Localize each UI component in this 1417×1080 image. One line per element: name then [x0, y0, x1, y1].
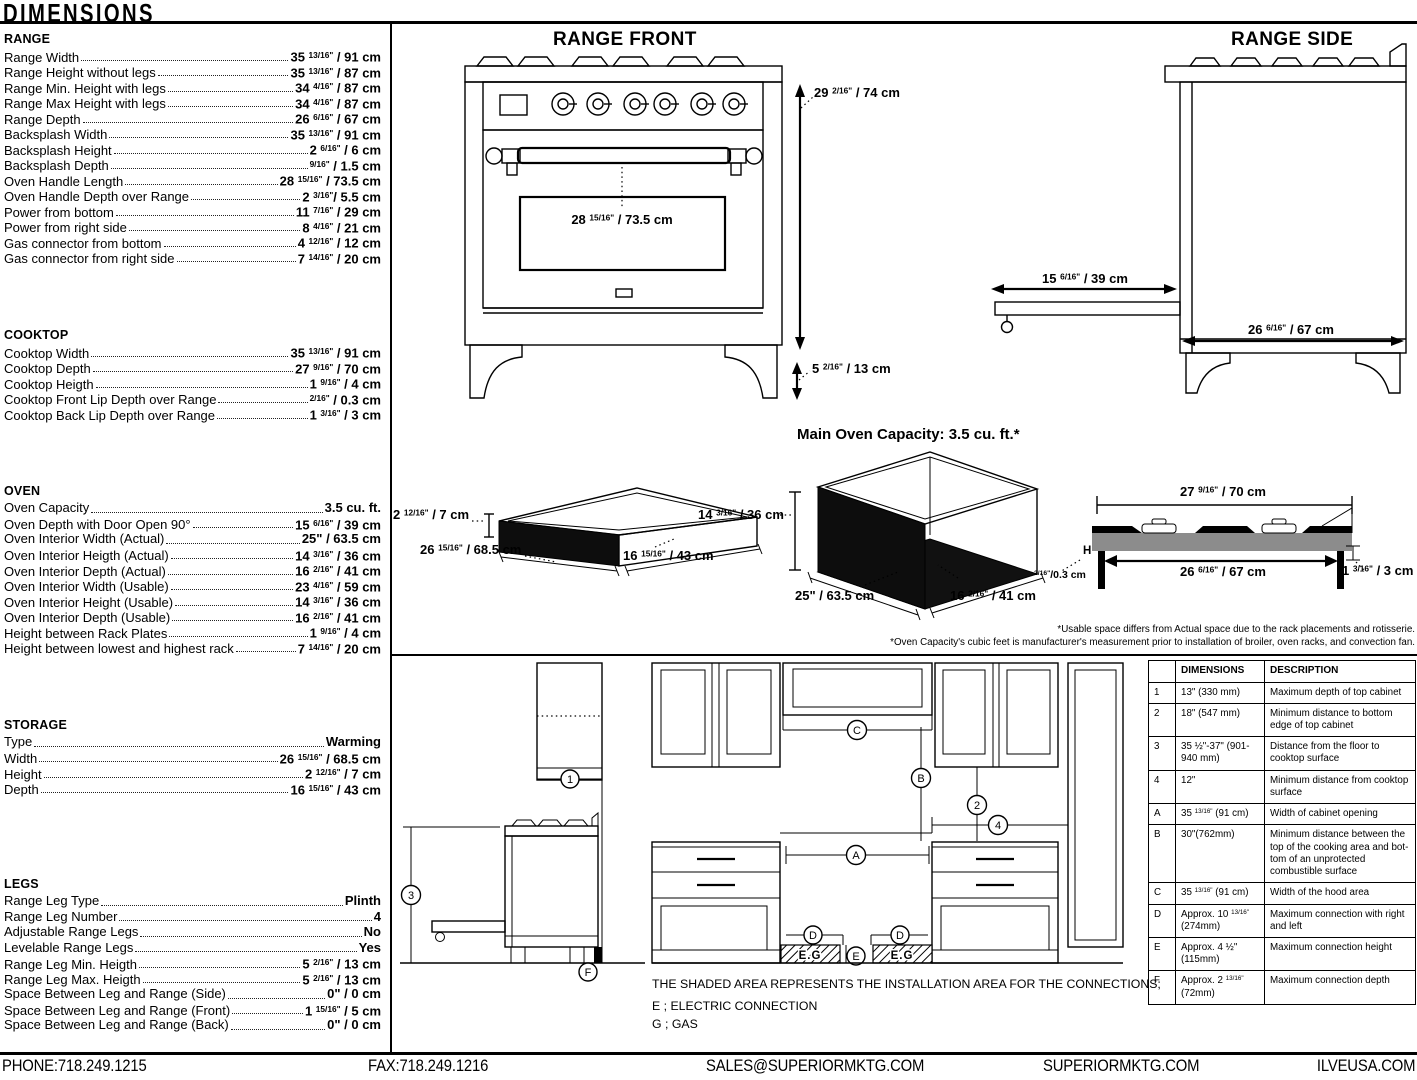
dim-drawer-height: 2 12/16" / 7 cm: [393, 507, 469, 522]
range-body-side: [1180, 82, 1406, 353]
range-front-drawing: [465, 57, 813, 400]
spec-sheet: DIMENSIONS RANGE Range Width35 13/16" / …: [0, 0, 1417, 1080]
spec-row: Range Leg TypePlinth: [4, 893, 381, 909]
spec-label: Cooktop Back Lip Depth over Range: [4, 408, 215, 424]
dim-cooktop-top: 27 9/16" / 70 cm: [1163, 484, 1283, 499]
spec-label: Height: [4, 767, 42, 783]
spec-row: Space Between Leg and Range (Side)0" / 0…: [4, 986, 381, 1002]
base-cabinet-left: [652, 842, 780, 963]
spec-row: Width26 15/16" / 68.5 cm: [4, 750, 381, 766]
row-dim: Approx. 4 ½" (115mm): [1176, 938, 1265, 971]
spec-row: Range Width35 13/16" / 91 cm: [4, 48, 381, 64]
right-leg: [725, 345, 777, 398]
dotted-leader: [96, 387, 308, 388]
spec-row: Oven Interior Width (Usable)23 4/16" / 5…: [4, 578, 381, 594]
spec-row: Oven Handle Length28 15/16" / 73.5 cm: [4, 172, 381, 188]
svg-text:E.G: E.G: [799, 950, 822, 962]
dotted-leader: [172, 620, 293, 621]
dotted-leader: [41, 792, 289, 793]
connection-bar: [594, 947, 602, 963]
height-dim-arrow: [795, 84, 813, 350]
table-row: 113" (330 mm)Maximum depth of top cabine…: [1149, 682, 1416, 703]
cooktop-small: [505, 826, 598, 836]
dim-rs-depth: 26 6/16" / 67 cm: [1248, 322, 1334, 337]
row-key: D: [1149, 904, 1176, 937]
spec-label: Backsplash Width: [4, 127, 107, 143]
footer-website-ilve: ILVEUSA.COM: [1317, 1057, 1415, 1076]
range-body-small: [505, 836, 598, 947]
row-desc: Maximum depth of top cabinet: [1265, 682, 1416, 703]
burner-cap-left-top: [1152, 519, 1166, 524]
dotted-leader: [129, 230, 301, 231]
row-key: A: [1149, 804, 1176, 825]
dotted-leader: [91, 356, 288, 357]
footnotes: *Usable space differs from Actual space …: [775, 624, 1415, 649]
row-dim: 12": [1176, 770, 1265, 803]
spec-row: Cooktop Front Lip Depth over Range2/16" …: [4, 391, 381, 407]
spec-label: Oven Interior Height (Usable): [4, 595, 173, 611]
spec-row: Oven Handle Depth over Range2 3/16"/ 5.5…: [4, 188, 381, 204]
dotted-leader: [164, 246, 296, 247]
cooktop-band: [465, 66, 782, 82]
row-dim: 35 13/16" (91 cm): [1176, 804, 1265, 825]
title-rule: [0, 21, 1417, 24]
spec-row: Range Min. Height with legs34 4/16" / 87…: [4, 79, 381, 95]
row-desc: Minimum distance to bottom edge of top c…: [1265, 703, 1416, 736]
spec-label: Gas connector from right side: [4, 251, 175, 267]
backsplash: [1390, 44, 1406, 66]
spec-label: Height between lowest and highest rack: [4, 641, 234, 657]
dim-drawer-depth: 16 15/16" / 43 cm: [623, 548, 714, 563]
spec-value: No: [364, 924, 381, 940]
dotted-leader: [158, 75, 289, 76]
spec-row: Oven Interior Height (Usable)14 3/16" / …: [4, 593, 381, 609]
spec-label: Oven Handle Depth over Range: [4, 189, 189, 205]
section-range: RANGE Range Width35 13/16" / 91 cm Range…: [4, 31, 381, 265]
dotted-leader: [175, 605, 293, 606]
oven-height-bracket: [780, 492, 801, 570]
open-door-small: [432, 921, 505, 932]
row-dim: 30"(762mm): [1176, 825, 1265, 883]
dotted-leader: [119, 920, 371, 921]
dotted-leader: [101, 905, 343, 906]
table-row: DApprox. 10 13/16" (274mm)Maximum connec…: [1149, 904, 1416, 937]
dim-cooktop-front-lip: 2/16"/0.3 cm: [1034, 569, 1086, 581]
svg-text:A: A: [852, 850, 860, 862]
dotted-leader: [218, 402, 307, 403]
dotted-leader: [83, 122, 293, 123]
col-dimensions: DIMENSIONS: [1176, 661, 1265, 683]
dotted-leader: [231, 1029, 325, 1030]
spec-value: Yes: [359, 940, 381, 956]
spec-label: Oven Capacity: [4, 500, 89, 516]
section-cooktop: COOKTOP Cooktop Width35 13/16" / 91 cm C…: [4, 327, 381, 422]
footer-rule: [0, 1052, 1417, 1055]
row-desc: Width of the hood area: [1265, 883, 1416, 904]
dotted-leader: [171, 558, 293, 559]
table-row: A35 13/16" (91 cm)Width of cabinet openi…: [1149, 804, 1416, 825]
table-row: C35 13/16" (91 cm)Width of the hood area: [1149, 883, 1416, 904]
brand-logo: [616, 289, 632, 297]
spec-label: Cooktop Heigth: [4, 377, 94, 393]
spec-row: Levelable Range LegsYes: [4, 940, 381, 956]
footnote-line: *Usable space differs from Actual space …: [775, 624, 1415, 637]
section-title: LEGS: [4, 876, 381, 893]
dim-rf-leg: 5 2/16" / 13 cm: [812, 361, 891, 376]
row-dim: 35 13/16" (91 cm): [1176, 883, 1265, 904]
dotted-leader: [228, 998, 325, 999]
dotted-leader: [169, 636, 307, 637]
dotted-leader: [44, 777, 303, 778]
row-dim: 13" (330 mm): [1176, 682, 1265, 703]
spec-row: Cooktop Back Lip Depth over Range1 3/16"…: [4, 406, 381, 422]
spec-label: Power from bottom: [4, 205, 114, 221]
dim-cooktop-h-label: H: [1083, 545, 1091, 557]
row-desc: Maximum connection depth: [1265, 971, 1416, 1004]
spec-row: Backsplash Depth9/16" / 1.5 cm: [4, 157, 381, 173]
table-row: 335 ½"-37" (901-940 mm)Distance from the…: [1149, 737, 1416, 770]
dim-oven-width: 25" / 63.5 cm: [795, 588, 874, 603]
spec-value: 25" / 63.5 cm: [302, 531, 381, 547]
spec-label: Oven Handle Length: [4, 174, 123, 190]
footer-email: SALES@SUPERIORMKTG.COM: [706, 1057, 924, 1076]
row-key: 1: [1149, 682, 1176, 703]
spec-row: Range Leg Max. Heigth5 2/16" / 13 cm: [4, 971, 381, 987]
spec-label: Depth: [4, 782, 39, 798]
dim-oven-height: 14 3/16" / 36 cm: [698, 507, 784, 522]
spec-row: Range Max Height with legs34 4/16" / 87 …: [4, 95, 381, 111]
dotted-leader: [139, 967, 300, 968]
svg-text:D: D: [809, 930, 817, 942]
dotted-leader: [125, 184, 277, 185]
install-side-view: 1 3 F: [400, 663, 645, 981]
row-key: F: [1149, 971, 1176, 1004]
shaded-area-note: THE SHADED AREA REPRESENTS THE INSTALLAT…: [652, 977, 1161, 991]
row-key: B: [1149, 825, 1176, 883]
corner-cell: [1149, 661, 1176, 683]
backsplash-small: [592, 813, 598, 826]
dotted-leader: [111, 168, 308, 169]
svg-text:C: C: [853, 725, 861, 737]
section-title: COOKTOP: [4, 327, 381, 344]
svg-text:E.G: E.G: [891, 950, 914, 962]
spec-label: Range Height without legs: [4, 65, 156, 81]
dotted-leader: [116, 215, 294, 216]
spec-row: Adjustable Range LegsNo: [4, 924, 381, 940]
dim-rf-handle: 28 15/16" / 73.5 cm: [542, 212, 702, 227]
burner-grates-side: [1190, 58, 1379, 66]
base-cabinet-right: [932, 842, 1058, 963]
table-row: EApprox. 4 ½" (115mm)Maximum connection …: [1149, 938, 1416, 971]
spec-label: Gas connector from bottom: [4, 236, 162, 252]
row-key: 2: [1149, 703, 1176, 736]
spec-label: Range Min. Height with legs: [4, 81, 166, 97]
oven-handle: [486, 148, 762, 175]
row-desc: Distance from the floor to cooktop surfa…: [1265, 737, 1416, 770]
spec-label: Range Leg Number: [4, 909, 117, 925]
dotted-leader: [217, 418, 308, 419]
table-row: 412"Minimum distance from cooktop surfac…: [1149, 770, 1416, 803]
dotted-leader: [140, 936, 361, 937]
dotted-leader: [91, 512, 322, 513]
spec-row: Oven Depth with Door Open 90°15 6/16" / …: [4, 516, 381, 532]
section-legs: LEGS Range Leg TypePlinth Range Leg Numb…: [4, 876, 381, 1033]
section-storage: STORAGE TypeWarming Width26 15/16" / 68.…: [4, 717, 381, 796]
table-row: B30"(762mm)Minimum distance between the …: [1149, 825, 1416, 883]
spec-value: 0" / 0 cm: [327, 986, 381, 1002]
spec-row: Oven Capacity3.5 cu. ft.: [4, 500, 381, 516]
spec-row: Oven Interior Heigth (Actual)14 3/16" / …: [4, 547, 381, 563]
spec-row: Backsplash Width35 13/16" / 91 cm: [4, 126, 381, 142]
spec-value: Warming: [326, 734, 381, 750]
dim-rf-height: 29 2/16" / 74 cm: [814, 85, 900, 100]
installation-svg: 1 3 F: [393, 656, 1153, 1052]
col-description: DESCRIPTION: [1265, 661, 1416, 683]
dotted-leader: [81, 60, 288, 61]
footer-fax: FAX:718.249.1216: [368, 1057, 488, 1076]
spec-label: Range Leg Type: [4, 893, 99, 909]
dotted-leader: [166, 543, 299, 544]
spec-value: Plinth: [345, 893, 381, 909]
knobs: [552, 93, 748, 115]
left-leg-bar: [1098, 551, 1105, 589]
section-title: OVEN: [4, 483, 381, 500]
spec-value: 4: [374, 909, 381, 925]
top-diagrams-svg: [393, 25, 1417, 655]
row-dim: 35 ½"-37" (901-940 mm): [1176, 737, 1265, 770]
vertical-divider: [390, 24, 392, 1052]
dotted-leader: [193, 527, 294, 528]
range-side-drawing: [991, 44, 1406, 393]
dotted-leader: [191, 199, 300, 200]
spec-row: Space Between Leg and Range (Front)1 15/…: [4, 1002, 381, 1018]
installation-table: DIMENSIONS DESCRIPTION 113" (330 mm)Maxi…: [1148, 660, 1416, 1005]
spec-label: Levelable Range Legs: [4, 940, 133, 956]
dotted-leader: [232, 1013, 303, 1014]
burner-cap-right: [1262, 524, 1296, 533]
spec-label: Oven Interior Width (Usable): [4, 579, 169, 595]
dim-cooktop-bottom: 26 6/16" / 67 cm: [1163, 564, 1283, 579]
spec-label: Type: [4, 734, 32, 750]
caster-wheel: [1002, 322, 1013, 333]
leg-small: [511, 947, 525, 963]
control-panel: [483, 82, 763, 130]
dotted-leader: [177, 261, 296, 262]
left-leg-side: [1186, 353, 1230, 393]
spec-label: Height between Rack Plates: [4, 626, 167, 642]
spec-label: Space Between Leg and Range (Back): [4, 1017, 229, 1033]
upper-cabinet-right: [935, 663, 1058, 767]
row-dim: Approx. 10 13/16" (274mm): [1176, 904, 1265, 937]
spec-label: Range Width: [4, 50, 79, 66]
grate-profile: [1092, 526, 1352, 533]
grates-small: [512, 820, 588, 826]
dotted-leader: [114, 153, 308, 154]
leg-dim-arrow: [792, 362, 810, 400]
section-title: RANGE: [4, 31, 381, 48]
spec-row: Oven Interior Depth (Usable)16 2/16" / 4…: [4, 609, 381, 625]
open-door-shelf: [995, 302, 1180, 315]
table-header-row: DIMENSIONS DESCRIPTION: [1149, 661, 1416, 683]
upper-cabinet-left: [652, 663, 780, 767]
spec-row: Oven Interior Width (Actual)25" / 63.5 c…: [4, 531, 381, 547]
spec-value: 7 14/16" / 20 cm: [298, 250, 381, 267]
spec-row: Backsplash Height2 6/16" / 6 cm: [4, 141, 381, 157]
tall-cabinet: [1068, 663, 1123, 947]
dotted-leader: [168, 91, 293, 92]
right-leg-side: [1356, 353, 1400, 393]
spec-row: Range Height without legs35 13/16" / 87 …: [4, 64, 381, 80]
dotted-leader: [39, 761, 277, 762]
burner-cap-right-top: [1272, 519, 1286, 524]
spec-label: Oven Interior Width (Actual): [4, 531, 164, 547]
dim-oven-depth: 16 2/16" / 41 cm: [950, 588, 1036, 603]
legend-electric: E ; ELECTRIC CONNECTION: [652, 999, 817, 1013]
spec-label: Oven Interior Depth (Actual): [4, 564, 166, 580]
spec-row: Cooktop Width35 13/16" / 91 cm: [4, 344, 381, 360]
spec-row: Range Depth26 6/16" / 67 cm: [4, 110, 381, 126]
spec-row: Cooktop Depth27 9/16" / 70 cm: [4, 360, 381, 376]
spec-row: Range Leg Min. Heigth5 2/16" / 13 cm: [4, 955, 381, 971]
spec-value: 0" / 0 cm: [327, 1017, 381, 1033]
dotted-leader: [236, 651, 296, 652]
spec-row: Power from right side8 4/16" / 21 cm: [4, 219, 381, 235]
spec-value: 1 3/16" / 3 cm: [310, 406, 381, 423]
dim-rs-door: 15 6/16" / 39 cm: [1042, 271, 1128, 286]
table-row: FApprox. 2 13/16" (72mm)Maximum connecti…: [1149, 971, 1416, 1004]
spec-label: Power from right side: [4, 220, 127, 236]
spec-label: Range Leg Min. Heigth: [4, 957, 137, 973]
svg-text:3: 3: [408, 890, 414, 902]
row-key: C: [1149, 883, 1176, 904]
svg-text:F: F: [585, 967, 592, 979]
page-title: DIMENSIONS: [3, 0, 155, 29]
dim-drawer-width: 26 15/16" / 68.5 cm: [420, 542, 521, 557]
svg-text:B: B: [917, 773, 924, 785]
spec-row: Depth16 15/16" / 43 cm: [4, 781, 381, 797]
svg-text:E: E: [852, 951, 859, 963]
row-desc: Width of cabinet opening: [1265, 804, 1416, 825]
svg-text:1: 1: [567, 774, 573, 786]
section-title: STORAGE: [4, 717, 381, 734]
cooktop-band-side: [1165, 66, 1406, 82]
oven-capacity-title: Main Oven Capacity: 3.5 cu. ft.*: [797, 426, 1020, 443]
install-front-view: C B 2 4: [652, 663, 1123, 965]
row-key: E: [1149, 938, 1176, 971]
row-key: 4: [1149, 770, 1176, 803]
svg-text:4: 4: [995, 820, 1001, 832]
row-dim: Approx. 2 13/16" (72mm): [1176, 971, 1265, 1004]
section-oven: OVEN Oven Capacity3.5 cu. ft. Oven Depth…: [4, 483, 381, 655]
spec-row: Oven Interior Depth (Actual)16 2/16" / 4…: [4, 562, 381, 578]
spec-row: Gas connector from right side7 14/16" / …: [4, 250, 381, 266]
spec-label: Cooktop Depth: [4, 361, 91, 377]
footnote-line: *Oven Capacity's cubic feet is manufactu…: [775, 637, 1415, 650]
footer-phone: PHONE:718.249.1215: [2, 1057, 147, 1076]
spec-label: Oven Interior Heigth (Actual): [4, 548, 169, 564]
spec-label: Space Between Leg and Range (Side): [4, 986, 226, 1002]
row-dim: 18" (547 mm): [1176, 703, 1265, 736]
spec-label: Cooktop Width: [4, 346, 89, 362]
spec-label: Oven Interior Depth (Usable): [4, 610, 170, 626]
leg-small: [570, 947, 584, 963]
legend-gas: G ; GAS: [652, 1017, 698, 1031]
svg-text:2: 2: [974, 800, 980, 812]
burner-grates: [477, 57, 744, 66]
caster-small: [436, 933, 445, 942]
row-desc: Minimum distance between the top of the …: [1265, 825, 1416, 883]
row-desc: Maximum connection height: [1265, 938, 1416, 971]
spec-value: 7 14/16" / 20 cm: [298, 640, 381, 657]
spec-value: 16 15/16" / 43 cm: [290, 781, 381, 798]
spec-label: Backsplash Height: [4, 143, 112, 159]
spec-row: Height between Rack Plates1 9/16" / 4 cm: [4, 624, 381, 640]
footer-website: SUPERIORMKTG.COM: [1043, 1057, 1199, 1076]
spec-row: Range Leg Number4: [4, 909, 381, 925]
spec-label: Width: [4, 751, 37, 767]
spec-row: Cooktop Heigth1 9/16" / 4 cm: [4, 375, 381, 391]
left-leg: [470, 345, 522, 398]
svg-text:D: D: [896, 930, 904, 942]
spec-label: Backsplash Depth: [4, 158, 109, 174]
spec-row: Height2 12/16" / 7 cm: [4, 765, 381, 781]
dotted-leader: [143, 982, 301, 983]
spec-label: Range Max Height with legs: [4, 96, 166, 112]
dotted-leader: [168, 574, 293, 575]
spec-row: Gas connector from bottom4 12/16" / 12 c…: [4, 234, 381, 250]
row-desc: Minimum distance from cooktop surface: [1265, 770, 1416, 803]
display: [500, 95, 527, 115]
row-desc: Maximum connection with right and left: [1265, 904, 1416, 937]
spec-label: Cooktop Front Lip Depth over Range: [4, 392, 216, 408]
burner-cap-left: [1142, 524, 1176, 533]
spec-label: Adjustable Range Legs: [4, 924, 138, 940]
spec-row: Height between lowest and highest rack7 …: [4, 640, 381, 656]
dotted-leader: [109, 137, 288, 138]
spec-row: Space Between Leg and Range (Back)0" / 0…: [4, 1017, 381, 1033]
spec-row: TypeWarming: [4, 734, 381, 750]
storage-drawer-drawing: [472, 488, 762, 576]
table-row: 218" (547 mm)Minimum distance to bottom …: [1149, 703, 1416, 736]
dim-cooktop-back-lip: 1 3/16" / 3 cm: [1342, 563, 1413, 578]
spec-label: Range Depth: [4, 112, 81, 128]
dotted-leader: [168, 106, 293, 107]
dotted-leader: [171, 589, 293, 590]
depth-arrow: [1182, 336, 1404, 346]
row-key: 3: [1149, 737, 1176, 770]
top-cabinet: [537, 663, 602, 780]
spec-value: 3.5 cu. ft.: [325, 500, 381, 516]
dotted-leader: [34, 746, 324, 747]
cooktop-slab: [1092, 533, 1352, 551]
oven-window: [520, 197, 725, 270]
dotted-leader: [93, 371, 293, 372]
drawer-height-bracket: [472, 514, 494, 537]
dotted-leader: [135, 951, 356, 952]
spec-row: Power from bottom11 7/16" / 29 cm: [4, 203, 381, 219]
